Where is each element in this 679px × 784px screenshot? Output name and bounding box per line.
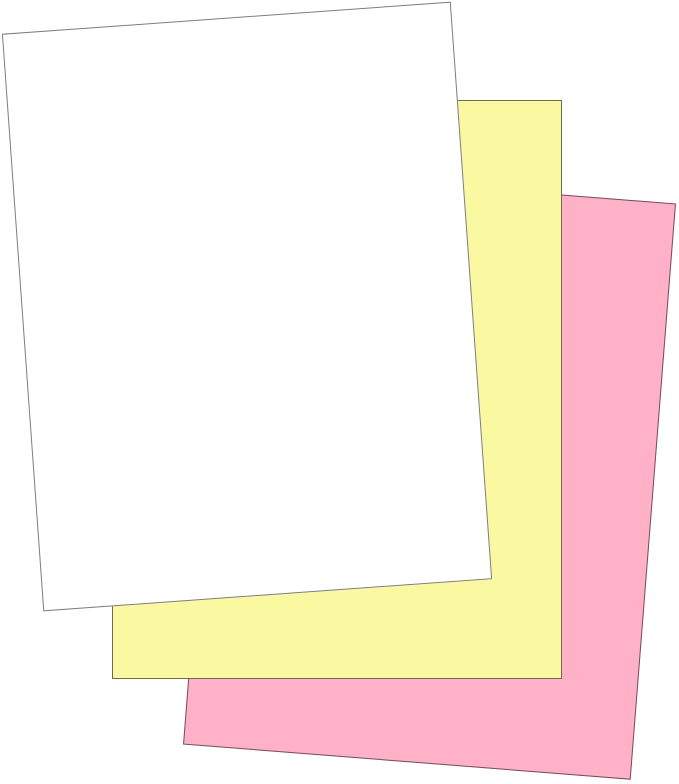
white-paper-sheet bbox=[2, 1, 492, 610]
paper-stack-photo bbox=[0, 0, 679, 784]
